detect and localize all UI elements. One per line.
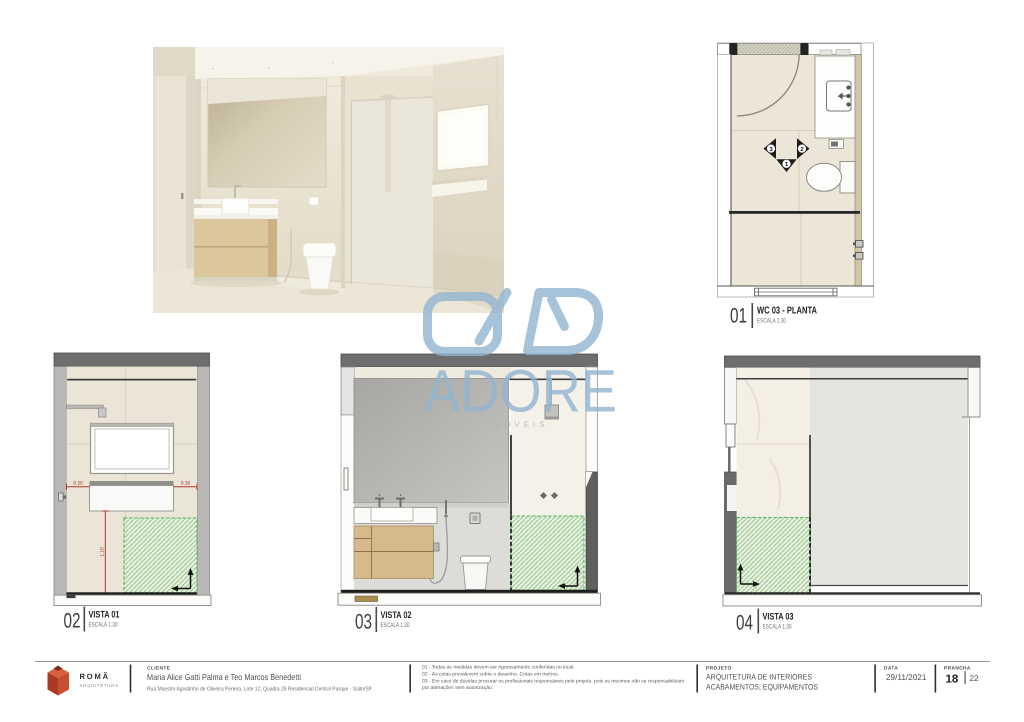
- svg-text:ROMÃ: ROMÃ: [80, 672, 110, 681]
- svg-text:ACABAMENTOS; EQUIPAMENTOS: ACABAMENTOS; EQUIPAMENTOS: [706, 683, 818, 692]
- svg-text:WC 03 - PLANTA: WC 03 - PLANTA: [757, 306, 817, 317]
- svg-text:ESCALA 1:30: ESCALA 1:30: [763, 624, 792, 631]
- svg-text:ESCALA 1:30: ESCALA 1:30: [381, 622, 410, 629]
- svg-text:01: 01: [730, 305, 747, 328]
- svg-text:04: 04: [736, 612, 753, 635]
- svg-text:por alterações sem autorização: por alterações sem autorização.: [422, 685, 493, 691]
- svg-text:Rua Maestro Agostinho de Olive: Rua Maestro Agostinho de Oliveira Pereir…: [147, 686, 372, 693]
- svg-text:1.10: 1.10: [100, 547, 106, 557]
- svg-text:03: 03: [355, 611, 372, 634]
- svg-text:18: 18: [946, 674, 959, 686]
- svg-text:ESCALA 1:30: ESCALA 1:30: [89, 622, 118, 629]
- svg-text:PRANCHA: PRANCHA: [944, 666, 971, 672]
- svg-text:02 - As cotas prevalecem sobre: 02 - As cotas prevalecem sobre o desenho…: [422, 672, 559, 678]
- svg-text:ESCALA 1:30: ESCALA 1:30: [757, 318, 786, 325]
- svg-text:0.20: 0.20: [73, 481, 83, 487]
- svg-text:0.30: 0.30: [181, 481, 191, 487]
- svg-text:MÓVEIS: MÓVEIS: [493, 420, 548, 429]
- svg-text:03 - Em caso de dúvidas procur: 03 - Em caso de dúvidas procurar os prof…: [422, 679, 684, 685]
- svg-text:ARQUITETURA: ARQUITETURA: [80, 683, 119, 688]
- svg-text:VISTA 01: VISTA 01: [89, 610, 121, 621]
- svg-text:PROJETO: PROJETO: [706, 666, 732, 672]
- svg-text:VISTA 02: VISTA 02: [381, 610, 412, 621]
- svg-text:ARQUITETURA DE INTERIORES: ARQUITETURA DE INTERIORES: [706, 673, 812, 682]
- svg-text:Maria Alice Gatti Palma e Teo: Maria Alice Gatti Palma e Teo Marcos Ben…: [147, 672, 301, 682]
- svg-text:02: 02: [64, 610, 81, 633]
- svg-text:29/11/2021: 29/11/2021: [886, 673, 927, 682]
- svg-text:CLIENTE: CLIENTE: [147, 666, 171, 672]
- svg-text:DATA: DATA: [884, 666, 898, 672]
- svg-text:22: 22: [970, 674, 980, 683]
- svg-text:VISTA 03: VISTA 03: [763, 612, 794, 623]
- svg-text:ADORE: ADORE: [424, 358, 617, 425]
- svg-text:01 - Todas as medidas devem se: 01 - Todas as medidas devem ser rigorosa…: [422, 665, 575, 671]
